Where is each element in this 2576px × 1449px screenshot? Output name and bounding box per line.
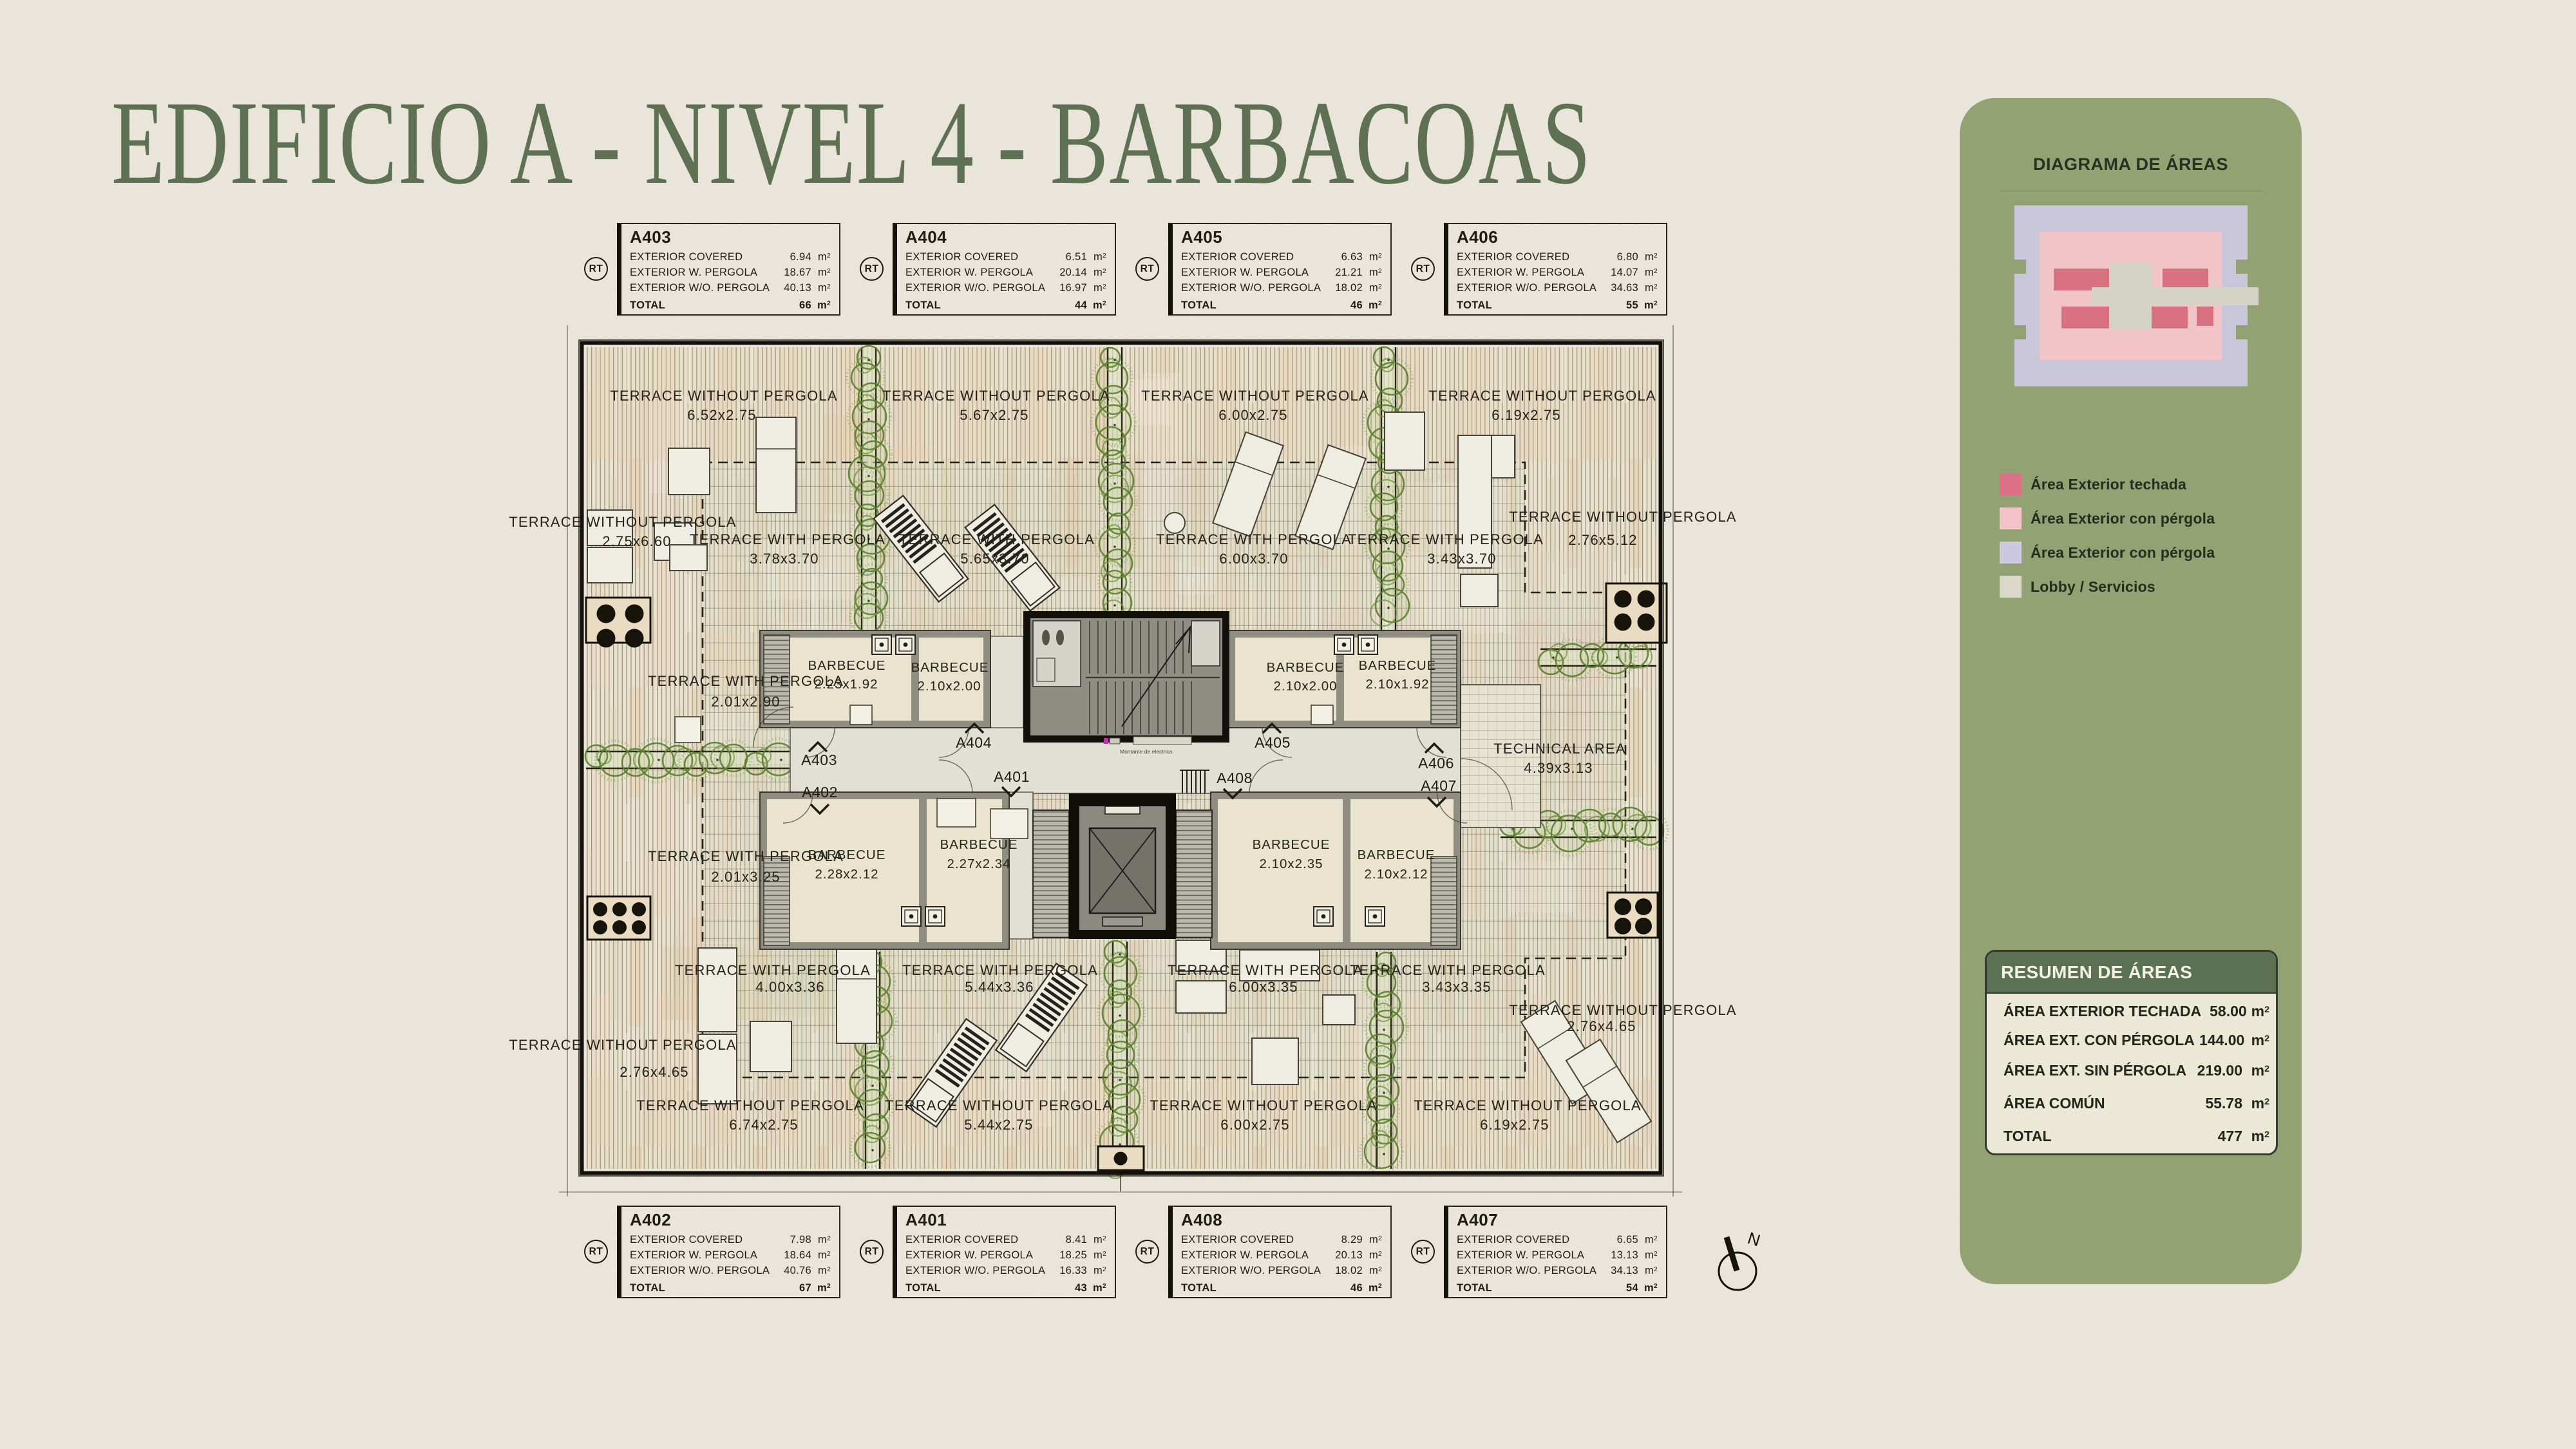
svg-text:TERRACE WITH PERGOLA: TERRACE WITH PERGOLA	[690, 531, 885, 547]
svg-text:TERRACE WITHOUT PERGOLA: TERRACE WITHOUT PERGOLA	[1509, 509, 1737, 525]
svg-text:5.44x2.75: 5.44x2.75	[964, 1117, 1033, 1133]
svg-text:A407: A407	[1421, 777, 1457, 794]
svg-text:BARBECUE: BARBECUE	[1267, 660, 1345, 675]
svg-text:BARBECUE: BARBECUE	[1253, 837, 1331, 852]
svg-text:TERRACE WITHOUT PERGOLA: TERRACE WITHOUT PERGOLA	[1428, 388, 1656, 404]
svg-text:TERRACE WITHOUT PERGOLA: TERRACE WITHOUT PERGOLA	[1141, 388, 1369, 404]
svg-text:TERRACE WITHOUT PERGOLA: TERRACE WITHOUT PERGOLA	[1509, 1002, 1737, 1018]
svg-text:TERRACE WITHOUT PERGOLA: TERRACE WITHOUT PERGOLA	[885, 1097, 1113, 1113]
svg-text:2.10x1.92: 2.10x1.92	[1365, 677, 1429, 692]
svg-text:2.28x2.12: 2.28x2.12	[815, 867, 878, 882]
svg-text:2.10x2.35: 2.10x2.35	[1259, 857, 1323, 871]
svg-text:A403: A403	[801, 752, 837, 768]
svg-text:2.27x2.34: 2.27x2.34	[947, 857, 1010, 871]
svg-text:A404: A404	[956, 734, 992, 751]
svg-text:A405: A405	[1255, 734, 1291, 751]
svg-text:5.44x3.36: 5.44x3.36	[965, 979, 1034, 995]
svg-text:TERRACE WITH PERGOLA: TERRACE WITH PERGOLA	[1350, 962, 1546, 978]
svg-text:6.00x2.75: 6.00x2.75	[1218, 407, 1287, 423]
svg-text:Montante de eléctrica: Montante de eléctrica	[1120, 748, 1173, 755]
svg-text:TERRACE WITH PERGOLA: TERRACE WITH PERGOLA	[1156, 531, 1352, 547]
svg-text:TERRACE WITH PERGOLA: TERRACE WITH PERGOLA	[902, 962, 1098, 978]
svg-text:BARBECUE: BARBECUE	[911, 660, 989, 675]
svg-text:6.19x2.75: 6.19x2.75	[1492, 407, 1560, 423]
svg-text:2.01x2.90: 2.01x2.90	[711, 694, 780, 710]
svg-text:2.23x1.92: 2.23x1.92	[814, 677, 878, 692]
svg-text:5.67x2.75: 5.67x2.75	[960, 407, 1028, 423]
svg-text:TERRACE WITHOUT PERGOLA: TERRACE WITHOUT PERGOLA	[509, 514, 737, 530]
svg-text:TERRACE WITHOUT PERGOLA: TERRACE WITHOUT PERGOLA	[509, 1037, 737, 1053]
svg-text:TERRACE WITH PERGOLA: TERRACE WITH PERGOLA	[675, 962, 871, 978]
svg-text:TERRACE WITHOUT PERGOLA: TERRACE WITHOUT PERGOLA	[1414, 1097, 1642, 1113]
svg-text:6.74x2.75: 6.74x2.75	[729, 1117, 798, 1133]
svg-text:2.01x3.25: 2.01x3.25	[711, 869, 780, 885]
svg-text:2.76x5.12: 2.76x5.12	[1568, 532, 1637, 548]
svg-text:4.39x3.13: 4.39x3.13	[1524, 760, 1593, 776]
svg-text:2.10x2.00: 2.10x2.00	[1273, 679, 1337, 694]
svg-text:4.00x3.36: 4.00x3.36	[755, 979, 824, 995]
svg-text:6.19x2.75: 6.19x2.75	[1480, 1117, 1549, 1133]
svg-text:A406: A406	[1418, 755, 1454, 772]
svg-text:BARBECUE: BARBECUE	[940, 837, 1018, 852]
svg-text:A402: A402	[802, 784, 838, 800]
svg-text:2.10x2.12: 2.10x2.12	[1364, 867, 1428, 882]
svg-text:TERRACE WITH PERGOLA: TERRACE WITH PERGOLA	[1168, 962, 1363, 978]
svg-text:2.76x4.65: 2.76x4.65	[1567, 1018, 1636, 1034]
svg-text:3.43x3.35: 3.43x3.35	[1422, 979, 1491, 995]
svg-text:TERRACE WITHOUT PERGOLA: TERRACE WITHOUT PERGOLA	[1150, 1097, 1378, 1113]
svg-text:6.00x3.35: 6.00x3.35	[1229, 979, 1298, 995]
svg-text:TECHNICAL AREA: TECHNICAL AREA	[1493, 741, 1625, 757]
svg-text:6.00x2.75: 6.00x2.75	[1220, 1117, 1289, 1133]
svg-text:5.65x3.70: 5.65x3.70	[960, 551, 1029, 567]
svg-text:A401: A401	[994, 768, 1030, 785]
svg-text:TERRACE WITHOUT PERGOLA: TERRACE WITHOUT PERGOLA	[636, 1097, 864, 1113]
svg-text:3.78x3.70: 3.78x3.70	[750, 551, 819, 567]
svg-text:TERRACE WITH PERGOLA: TERRACE WITH PERGOLA	[1348, 531, 1544, 547]
svg-text:BARBECUE: BARBECUE	[808, 848, 886, 862]
svg-text:TERRACE WITHOUT PERGOLA: TERRACE WITHOUT PERGOLA	[882, 388, 1110, 404]
svg-text:BARBECUE: BARBECUE	[1358, 848, 1435, 862]
svg-text:2.75x6.60: 2.75x6.60	[602, 533, 671, 549]
svg-text:A408: A408	[1217, 770, 1253, 786]
svg-text:N: N	[1745, 1228, 1763, 1250]
svg-text:6.00x3.70: 6.00x3.70	[1219, 551, 1288, 567]
svg-text:3.43x3.70: 3.43x3.70	[1427, 551, 1496, 567]
svg-text:2.10x2.00: 2.10x2.00	[917, 679, 981, 694]
svg-text:6.52x2.75: 6.52x2.75	[687, 407, 756, 423]
svg-text:BARBECUE: BARBECUE	[1359, 658, 1437, 673]
svg-text:TERRACE WITH PERGOLA: TERRACE WITH PERGOLA	[899, 531, 1095, 547]
svg-text:BARBECUE: BARBECUE	[808, 658, 886, 673]
svg-text:2.76x4.65: 2.76x4.65	[620, 1064, 688, 1080]
svg-text:TERRACE WITHOUT PERGOLA: TERRACE WITHOUT PERGOLA	[610, 388, 838, 404]
